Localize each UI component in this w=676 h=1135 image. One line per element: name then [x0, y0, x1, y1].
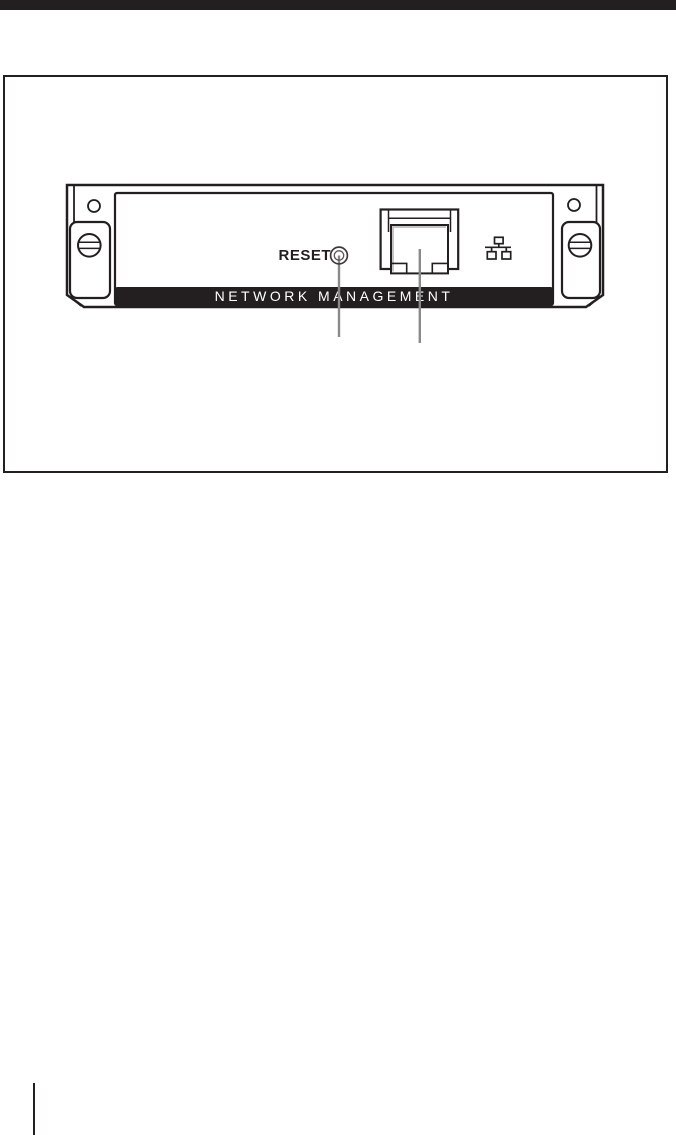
left-screw-hole [88, 200, 100, 212]
page-margin-rule [33, 1083, 35, 1135]
right-screw-hole [568, 199, 580, 211]
right-thumbscrew [569, 234, 592, 257]
left-thumbscrew [78, 234, 101, 257]
figure-box: NETWORK MANAGEMENT RESET [3, 75, 668, 473]
network-card-illustration: NETWORK MANAGEMENT RESET [5, 77, 666, 471]
name-strip-label: NETWORK MANAGEMENT [215, 288, 454, 304]
page-header-bar [0, 0, 676, 10]
document-page: NETWORK MANAGEMENT RESET [0, 0, 676, 1135]
reset-label: RESET [278, 247, 331, 264]
